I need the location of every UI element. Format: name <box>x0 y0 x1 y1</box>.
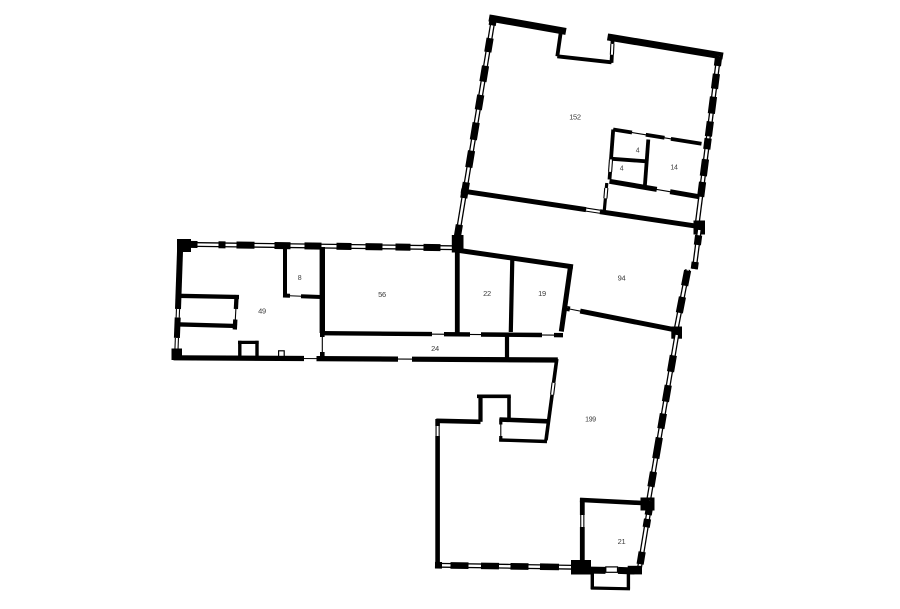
svg-text:152: 152 <box>569 113 581 122</box>
svg-text:19: 19 <box>538 289 546 298</box>
svg-text:14: 14 <box>670 165 678 172</box>
svg-text:22: 22 <box>483 289 491 298</box>
svg-text:199: 199 <box>585 416 596 423</box>
svg-text:21: 21 <box>618 537 626 546</box>
svg-text:8: 8 <box>298 275 302 282</box>
svg-text:56: 56 <box>378 290 386 299</box>
svg-text:24: 24 <box>431 344 439 353</box>
svg-text:4: 4 <box>636 147 640 154</box>
svg-text:4: 4 <box>620 166 624 173</box>
svg-text:94: 94 <box>618 274 626 283</box>
svg-text:49: 49 <box>258 307 266 316</box>
